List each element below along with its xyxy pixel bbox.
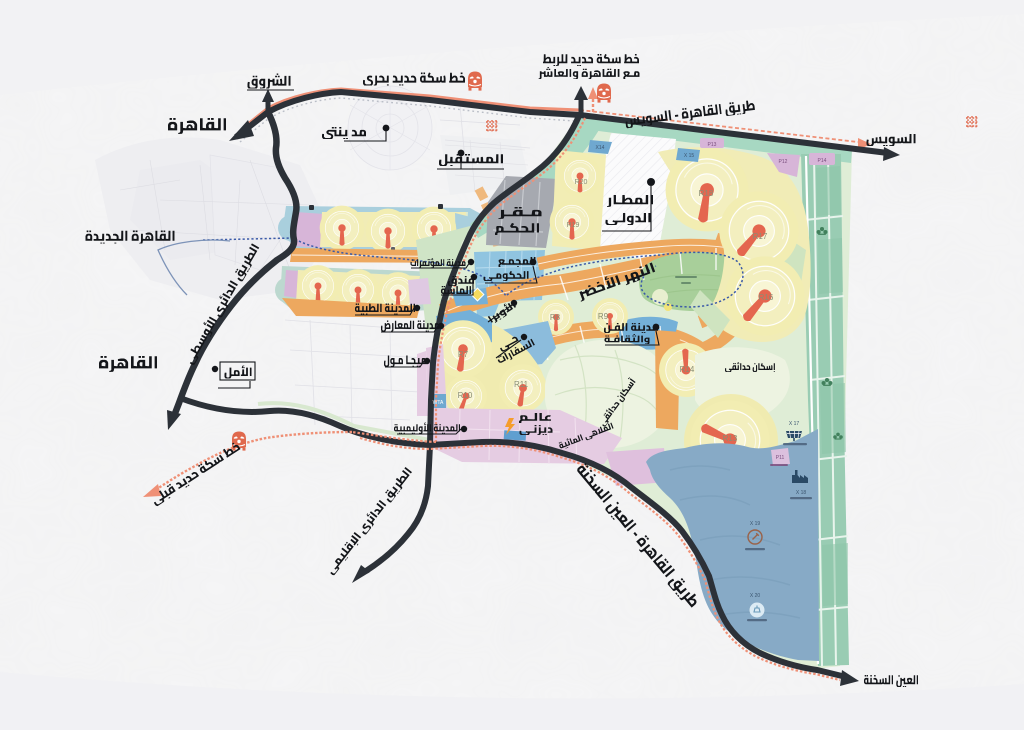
svg-text:X 20: X 20 xyxy=(750,593,761,599)
svg-text:R7: R7 xyxy=(458,350,469,359)
svg-text:R17: R17 xyxy=(753,232,768,241)
svg-text:R10: R10 xyxy=(458,391,473,400)
svg-text:P11: P11 xyxy=(776,455,785,461)
svg-text:R11: R11 xyxy=(514,380,529,389)
svg-text:R14: R14 xyxy=(680,365,695,374)
svg-text:P12: P12 xyxy=(779,159,788,165)
svg-text:R18: R18 xyxy=(699,189,714,198)
svg-text:X 19: X 19 xyxy=(750,521,761,527)
svg-text:P14: P14 xyxy=(818,158,827,164)
svg-text:R19: R19 xyxy=(567,222,580,229)
svg-text:X14: X14 xyxy=(596,145,605,151)
svg-text:WTA: WTA xyxy=(433,400,444,406)
svg-text:X 15: X 15 xyxy=(684,153,695,159)
svg-text:R8: R8 xyxy=(550,313,561,322)
svg-text:P13: P13 xyxy=(708,142,717,148)
svg-text:R9: R9 xyxy=(598,312,609,321)
svg-text:X 18: X 18 xyxy=(796,490,807,496)
svg-text:X 17: X 17 xyxy=(789,421,800,427)
svg-text:R16: R16 xyxy=(759,293,774,302)
svg-text:R13: R13 xyxy=(723,434,738,443)
svg-text:R20: R20 xyxy=(575,179,588,186)
